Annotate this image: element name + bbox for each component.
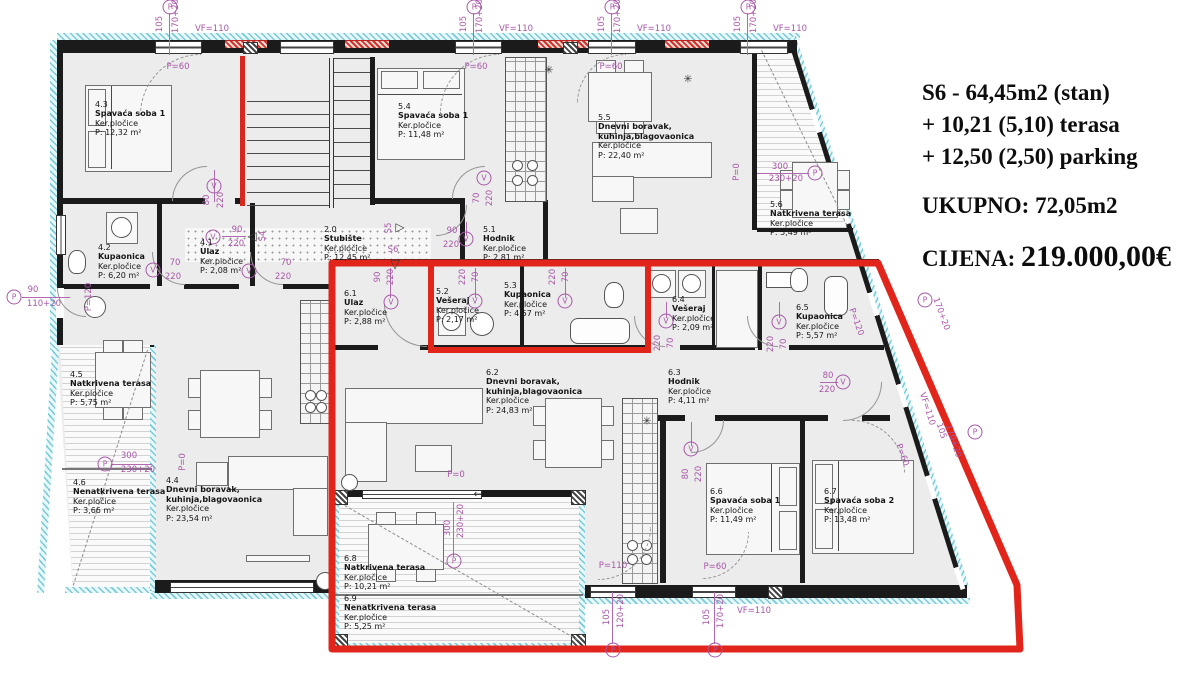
room-rfin: Ker.pločice [770,219,851,228]
dimension-text: 105 [733,16,743,32]
plan-symbol-icon: ✳ [642,415,651,428]
room-label-6-4: 6.4VešerajKer.pločiceP: 2,09 m² [672,295,715,333]
room-rname: Hodnik [483,234,526,243]
dimension-text: P=120 [84,283,94,311]
plan-symbol-icon: ✳ [544,64,553,77]
room-rid: 6.2 [486,368,582,377]
dimension-text: VF=110 [499,24,533,34]
dimension-text: 170+20 [171,0,181,33]
room-rname: Kupaonica [796,312,843,321]
dimension-text: 220 [443,240,459,250]
room-rid: 6.5 [796,303,843,312]
room-rid: 4.1 [200,238,243,247]
entrance-marker-icon: ◁ [247,230,256,242]
room-rfin: Ker.pločice [504,300,551,309]
dimension-text: 70 [561,272,571,283]
room-rarea: P: 22,40 m² [598,151,694,160]
total-area-line: UKUPNO: 72,05m2 [922,193,1171,219]
room-rfin: Ker.pločice [668,387,711,396]
dimension-text: 105 [602,609,612,625]
dimension-text: 220 [766,336,776,352]
room-rfin: Ker.pločice [98,262,145,271]
room-rname: Ulaz [344,298,387,307]
dimension-text: 70 [472,193,482,204]
dimension-text: 170+20 [475,0,485,33]
room-rfin: Ker.pločice [344,573,425,582]
dimension-text: 220 [165,272,181,282]
room-label-5-3: 5.3KupaonicaKer.pločiceP: 4,57 m² [504,281,551,319]
room-label-6-8: 6.8Natkrivena terasaKer.pločiceP: 10,21 … [344,554,425,592]
room-rid: 6.8 [344,554,425,563]
dimension-text: 90 [447,226,458,236]
room-rname: Dnevni boravak, kuhinja,blagovaonica [166,485,262,504]
room-rname: Natkrivena terasa [344,563,425,572]
dimension-circle-p-icon: P [98,457,113,472]
entrance-marker-icon: ▷ [395,221,404,233]
room-rname: Vešeraj [672,304,715,313]
dimension-text: 220 [386,269,396,285]
dimension-text: P=60 [703,562,726,572]
dimension-text: 170+20 [749,0,759,33]
dimension-text: 300 [121,451,137,461]
room-rname: Spavaća soba 1 [710,496,780,505]
dimension-circle-p-icon: P [968,425,983,440]
dimension-text: P=0 [178,453,188,471]
room-rarea: P: 5,25 m² [344,622,436,631]
listing-info-panel: S6 - 64,45m2 (stan) + 10,21 (5,10) teras… [922,80,1171,274]
dimension-text: 230+20 [456,504,466,538]
room-rfin: Ker.pločice [73,497,165,506]
dimension-text: S5 [384,223,394,234]
room-rname: Nenatkrivena terasa [73,487,165,496]
dimension-text: 110+20 [27,299,61,309]
dimension-text: P=60 [599,62,622,72]
dimension-text: 105 [597,16,607,32]
room-rarea: P: 2,09 m² [672,323,715,332]
room-rname: Hodnik [668,377,711,386]
dimension-circle-v-icon: V [772,315,787,330]
room-rarea: P: 12,45 m² [324,253,371,262]
room-rid: 5.1 [483,225,526,234]
room-rfin: Ker.pločice [796,322,843,331]
dimension-text: 220 [216,192,226,208]
room-label-6-3: 6.3HodnikKer.pločiceP: 4,11 m² [668,368,711,406]
dimension-text: 300 [443,520,453,536]
dimension-text: 90 [28,285,39,295]
room-rfin: Ker.pločice [486,396,582,405]
room-rname: Dnevni boravak, kuhinja,blagovaonica [598,122,694,141]
room-rname: Spavaća soba 1 [95,109,165,118]
price-label: CIJENA: [922,246,1015,271]
room-rarea: P: 11,49 m² [710,515,780,524]
dimension-circle-v-icon: V [477,171,492,186]
price-value: 219.000,00€ [1021,240,1171,273]
room-rarea: P: 12,32 m² [95,128,165,137]
room-rarea: P: 10,21 m² [344,582,425,591]
dimension-text: 220 [653,335,663,351]
room-label-6-5: 6.5KupaonicaKer.pločiceP: 5,57 m² [796,303,843,341]
dimension-text: 80 [681,469,691,480]
dimension-text: 220 [485,190,495,206]
room-rname: Ulaz [200,247,243,256]
room-rfin: Ker.pločice [70,389,151,398]
dimension-text: S4 [258,231,268,242]
dimension-text: 80 [823,371,834,381]
dimension-text: 70 [779,339,789,350]
dimension-text: 70 [666,338,676,349]
dimension-circle-p-icon: P [7,290,22,305]
price-line: CIJENA: 219.000,00€ [922,240,1171,274]
plan-symbol-icon: ✳ [683,73,692,86]
room-rarea: P: 11,48 m² [398,130,468,139]
room-rid: 6.3 [668,368,711,377]
room-rid: 5.5 [598,113,694,122]
room-rarea: P: 5,75 m² [70,398,151,407]
room-label-4-1: 4.1UlazKer.pločiceP: 2,08 m² [200,238,243,276]
room-rfin: Ker.pločice [672,314,715,323]
dimension-text: 90 [232,225,243,235]
dimension-text: 230+20 [121,465,155,475]
dimension-text: S6 [388,245,399,255]
room-rarea: P: 6,20 m² [98,271,145,280]
room-rid: 4.5 [70,370,151,379]
room-rname: Vešeraj [436,296,479,305]
floor-plan-page: P105170+20VF=110P105170+20VF=110P105170+… [0,0,1200,673]
dimension-text: P=60 [464,62,487,72]
room-rfin: Ker.pločice [324,244,371,253]
dimension-text: VF=110 [737,606,771,616]
room-rid: 6.1 [344,289,387,298]
room-label-6-7: 6.7Spavaća soba 2Ker.pločiceP: 13,48 m² [824,487,894,525]
dimension-circle-v-icon: V [558,294,573,309]
room-rid: 4.4 [166,476,262,485]
room-rarea: P: 2,88 m² [344,317,387,326]
room-label-4-3: 4.3Spavaća soba 1Ker.pločiceP: 12,32 m² [95,100,165,138]
room-rfin: Ker.pločice [824,506,894,515]
room-rarea: P: 4,11 m² [668,396,711,405]
dimension-circle-p-icon: P [708,643,723,658]
room-rname: Kupaonica [98,252,145,261]
room-rarea: P: 2,08 m² [200,266,243,275]
room-rarea: P: 13,48 m² [824,515,894,524]
room-rfin: Ker.pločice [344,308,387,317]
dimension-text: 220 [819,385,835,395]
room-rname: Spavaća soba 1 [398,111,468,120]
room-rname: Nenatkrivena terasa [344,603,436,612]
room-label-5-2: 5.2VešerajKer.pločiceP: 2,17 m² [436,287,479,325]
dimension-circle-v-icon: V [146,263,161,278]
dimension-text: VF=110 [773,24,807,34]
dimension-circle-v-icon: V [459,232,474,247]
room-rname: Stubište [324,234,371,243]
room-rid: 4.6 [73,478,165,487]
dimension-text: 105 [155,16,165,32]
room-rarea: P: 4,57 m² [504,309,551,318]
parking-area-line: + 12,50 (2,50) parking [922,144,1171,176]
dimension-circle-p-icon: P [447,554,462,569]
dimension-text: P=60 [166,62,189,72]
room-rid: 4.2 [98,243,145,252]
dimension-text: 220 [275,272,291,282]
room-label-6-2: 6.2Dnevni boravak, kuhinja,blagovaonicaK… [486,368,582,415]
dimension-circle-v-icon: V [836,375,851,390]
room-rname: Natkrivena terasa [70,379,151,388]
room-rarea: P: 23,54 m² [166,514,262,523]
room-rarea: P: 2,81 m² [483,253,526,262]
dimension-text: 80 [202,195,212,206]
room-rarea: P: 5,57 m² [796,331,843,340]
room-rarea: P: 24,83 m² [486,406,582,415]
room-rfin: Ker.pločice [710,506,780,515]
room-label-5-6: 5.6Natkrivena terasaKer.pločiceP: 5,49 m… [770,200,851,238]
room-label-5-1: 5.1HodnikKer.pločiceP: 2,81 m² [483,225,526,263]
room-label-4-6: 4.6Nenatkrivena terasaKer.pločiceP: 3,66… [73,478,165,516]
dimension-text: 105 [459,16,469,32]
room-rname: Spavaća soba 2 [824,496,894,505]
dimension-text: P=0 [447,470,465,480]
room-label-6-1: 6.1UlazKer.pločiceP: 2,88 m² [344,289,387,327]
dimension-text: VF=110 [637,24,671,34]
room-label-6-6: 6.6Spavaća soba 1Ker.pločiceP: 11,49 m² [710,487,780,525]
dimension-text: 300 [772,162,788,172]
room-label-5-4: 5.4Spavaća soba 1Ker.pločiceP: 11,48 m² [398,102,468,140]
dimension-text: 70 [471,272,481,283]
room-rname: Dnevni boravak, kuhinja,blagovaonica [486,377,582,396]
dimension-text: 70 [281,258,292,268]
room-rid: 5.6 [770,200,851,209]
room-rfin: Ker.pločice [598,141,694,150]
dimension-text: 70 [170,258,181,268]
dimension-text: 90 [373,272,383,283]
dimension-text: 120+20 [616,594,626,628]
dimension-text: 105 [702,609,712,625]
room-label-2-0: 2.0StubišteKer.pločiceP: 12,45 m² [324,225,371,263]
room-rname: Natkrivena terasa [770,209,851,218]
room-rarea: P: 2,17 m² [436,315,479,324]
room-rfin: Ker.pločice [166,504,262,513]
dimension-text: VF=110 [195,24,229,34]
dimension-text: 170+20 [716,594,726,628]
apartment-area-line: S6 - 64,45m2 (stan) [922,80,1171,112]
room-label-5-5: 5.5Dnevni boravak, kuhinja,blagovaonicaK… [598,113,694,160]
room-label-4-5: 4.5Natkrivena terasaKer.pločiceP: 5,75 m… [70,370,151,408]
room-rid: 5.3 [504,281,551,290]
dimension-circle-p-icon: P [606,643,621,658]
dimension-text: 220 [458,269,468,285]
room-rfin: Ker.pločice [398,121,468,130]
dimension-text: 230+20 [769,174,803,184]
plan-symbol-icon: ← [473,488,482,501]
room-rarea: P: 3,66 m² [73,506,165,515]
dimension-text: P=0 [732,163,742,181]
room-rfin: Ker.pločice [200,257,243,266]
dimension-circle-v-icon: V [242,264,257,279]
room-label-4-4: 4.4Dnevni boravak, kuhinja,blagovaonicaK… [166,476,262,523]
room-label-6-9: 6.9Nenatkrivena terasaKer.pločiceP: 5,25… [344,594,436,632]
room-rfin: Ker.pločice [95,119,165,128]
room-rfin: Ker.pločice [344,613,436,622]
room-label-4-2: 4.2KupaonicaKer.pločiceP: 6,20 m² [98,243,145,281]
dimension-text: 220 [694,466,704,482]
room-rname: Kupaonica [504,290,551,299]
dimension-text: 170+20 [613,0,623,33]
room-rfin: Ker.pločice [436,306,479,315]
terrace-area-line: + 10,21 (5,10) terasa [922,112,1171,144]
room-rarea: P: 5,49 m² [770,228,851,237]
dimension-circle-v-icon: V [684,442,699,457]
dimension-circle-p-icon: P [808,166,823,181]
room-rfin: Ker.pločice [483,244,526,253]
room-rid: 6.9 [344,594,436,603]
dimension-text: P=110 [599,561,627,571]
